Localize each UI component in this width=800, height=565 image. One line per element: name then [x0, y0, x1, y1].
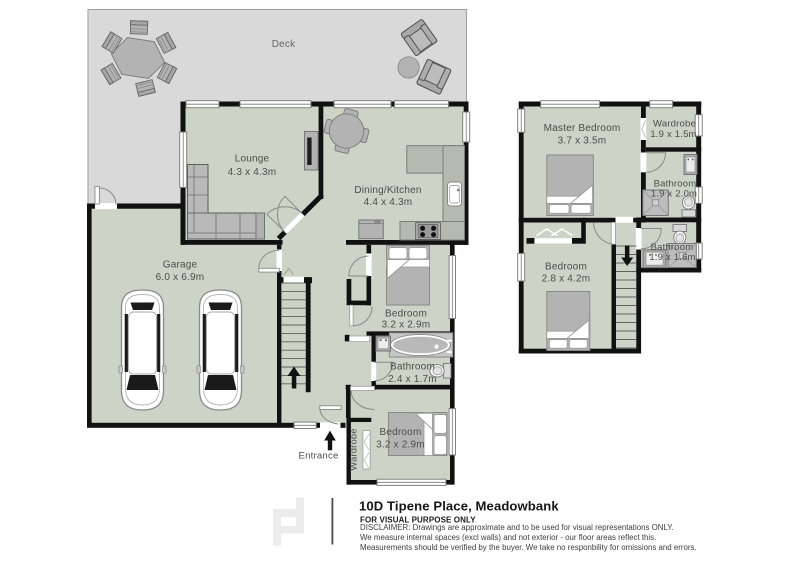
svg-text:2.8 x 4.2m: 2.8 x 4.2m — [542, 274, 591, 285]
svg-text:1.9 x 2.0m: 1.9 x 2.0m — [651, 189, 697, 200]
svg-text:Bedroom: Bedroom — [380, 427, 422, 438]
svg-text:Bathroom: Bathroom — [390, 362, 435, 373]
svg-text:3.2 x 2.9m: 3.2 x 2.9m — [382, 319, 431, 330]
svg-text:10D Tipene Place, Meadowbank: 10D Tipene Place, Meadowbank — [359, 499, 559, 514]
svg-text:3.7 x 3.5m: 3.7 x 3.5m — [558, 136, 607, 147]
svg-text:We measure internal spaces (ex: We measure internal spaces (excl walls) … — [360, 533, 656, 542]
svg-text:1.9 x 1.6m: 1.9 x 1.6m — [649, 252, 695, 263]
svg-text:Garage: Garage — [163, 260, 198, 271]
svg-text:Bedroom: Bedroom — [385, 309, 427, 320]
svg-text:DISCLAIMER: Drawings are appr: DISCLAIMER: Drawings are approximate and… — [360, 523, 674, 532]
svg-text:Measurements should be verifie: Measurements should be verified by the b… — [360, 543, 697, 552]
svg-text:Wardrobe: Wardrobe — [653, 119, 696, 130]
svg-text:Deck: Deck — [272, 39, 296, 50]
svg-text:3.2 x 2.9m: 3.2 x 2.9m — [376, 440, 425, 451]
svg-text:2.4 x 1.7m: 2.4 x 1.7m — [388, 374, 437, 385]
svg-text:Master Bedroom: Master Bedroom — [544, 123, 621, 134]
svg-text:1.9 x 1.5m: 1.9 x 1.5m — [650, 129, 696, 140]
svg-text:Dining/Kitchen: Dining/Kitchen — [354, 185, 421, 196]
svg-text:Lounge: Lounge — [235, 154, 270, 165]
svg-text:Entrance: Entrance — [299, 451, 339, 462]
svg-text:4.3 x 4.3m: 4.3 x 4.3m — [228, 167, 277, 178]
svg-text:6.0 x 6.9m: 6.0 x 6.9m — [156, 272, 205, 283]
svg-text:Bedroom: Bedroom — [545, 262, 587, 273]
svg-text:Wardrobe: Wardrobe — [348, 428, 359, 470]
svg-text:4.4 x 4.3m: 4.4 x 4.3m — [364, 197, 413, 208]
